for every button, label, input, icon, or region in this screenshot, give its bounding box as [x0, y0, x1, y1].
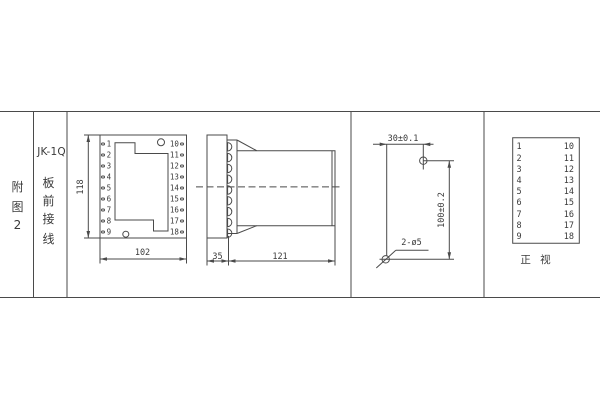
table-row: 211 [517, 153, 575, 164]
terminal-number: 15 [170, 195, 179, 204]
figure-label-char-1: 附 [11, 181, 23, 193]
table-cell-left: 7 [517, 210, 522, 220]
terminal-right-11: 11 [164, 151, 184, 160]
terminal-number: 9 [107, 228, 112, 237]
terminal-left-4: 4 [101, 173, 111, 182]
terminal-number: 13 [170, 173, 179, 182]
table-cell-right: 14 [564, 187, 574, 197]
figure-label-char-3: 2 [14, 219, 22, 231]
terminal-number: 4 [107, 173, 112, 182]
terminal-number: 17 [170, 217, 179, 226]
terminal-number: 1 [107, 140, 112, 149]
terminal-bump [228, 153, 232, 161]
table-cell-left: 2 [517, 154, 522, 164]
taper-bottom [237, 226, 257, 234]
terminal-circle [180, 175, 184, 179]
dim-case-depth-label: 121 [272, 252, 287, 261]
terminal-bump [228, 218, 232, 226]
wiring-label-char-4: 线 [42, 233, 54, 245]
terminal-number: 16 [170, 206, 179, 215]
table-cell-right: 11 [564, 154, 574, 164]
table-row: 514 [517, 187, 575, 198]
terminal-number: 7 [107, 206, 112, 215]
arrow-right [380, 143, 387, 147]
terminal-right-13: 13 [164, 173, 184, 182]
wiring-label-char-2: 前 [42, 195, 54, 207]
terminal-left-8: 8 [101, 217, 111, 226]
wiring-label-char-1: 板 [42, 177, 54, 189]
terminal-left-1: 1 [101, 140, 111, 149]
figure-label-char-2: 图 [11, 201, 23, 213]
table-cell-left: 6 [517, 198, 522, 208]
arrow-left [100, 257, 107, 261]
terminal-right-15: 15 [164, 195, 184, 204]
terminal-number: 14 [170, 184, 179, 193]
terminal-bump [228, 164, 232, 172]
terminal-number: 2 [107, 151, 112, 160]
terminal-circle [180, 208, 184, 212]
terminal-right-10: 10 [164, 140, 184, 149]
terminal-number: 12 [170, 162, 179, 171]
terminal-circle [101, 208, 105, 212]
arrow-left [423, 143, 430, 147]
dim-width-label: 102 [135, 249, 150, 258]
holes-label: 2-ø5 [401, 238, 421, 247]
dim-vertical-label: 100±0.2 [438, 192, 447, 228]
terminal-table-rows: 110211312413514615716817918 [517, 142, 575, 243]
terminal-circle [101, 186, 105, 190]
table-cell-left: 9 [517, 232, 522, 242]
terminal-left-9: 9 [101, 228, 111, 237]
dim-front-depth-label: 35 [212, 252, 222, 261]
dim-horizontal-label: 30±0.1 [388, 134, 419, 143]
terminal-right-14: 14 [164, 184, 184, 193]
terminal-bump [228, 197, 232, 205]
terminal-circle [101, 197, 105, 201]
arrow-left [229, 259, 236, 263]
table-cell-right: 13 [564, 176, 574, 186]
table-cell-right: 18 [564, 232, 574, 242]
front-view-caption: 正 视 [520, 254, 553, 265]
terminal-right-17: 17 [164, 217, 184, 226]
terminal-left-3: 3 [101, 162, 111, 171]
terminal-right-18: 18 [164, 228, 184, 237]
front-mount-hole-bottom [123, 231, 129, 237]
terminal-circle [180, 186, 184, 190]
model-label: JK-1Q [37, 146, 66, 157]
terminal-circle [101, 142, 105, 146]
table-row: 615 [517, 198, 575, 209]
table-cell-left: 4 [517, 176, 522, 186]
terminal-circle [180, 153, 184, 157]
terminal-circle [180, 142, 184, 146]
terminal-right-16: 16 [164, 206, 184, 215]
terminal-circle [101, 175, 105, 179]
terminal-circle [180, 197, 184, 201]
arrow-up [448, 161, 452, 168]
table-row: 312 [517, 164, 575, 175]
terminal-left-7: 7 [101, 206, 111, 215]
table-cell-right: 16 [564, 210, 574, 220]
table-cell-right: 17 [564, 221, 574, 231]
terminal-circle [180, 164, 184, 168]
table-row: 110 [517, 142, 575, 153]
terminal-left-2: 2 [101, 151, 111, 160]
terminal-right-12: 12 [164, 162, 184, 171]
table-cell-left: 5 [517, 187, 522, 197]
table-row: 716 [517, 209, 575, 220]
front-inner-contour [115, 143, 168, 231]
table-cell-right: 12 [564, 165, 574, 175]
arrow-right [180, 257, 187, 261]
terminal-number: 11 [170, 151, 179, 160]
terminal-bump [228, 143, 232, 151]
terminal-circle [101, 219, 105, 223]
table-row: 413 [517, 175, 575, 186]
drawing-lineart [0, 0, 600, 400]
table-cell-left: 1 [517, 142, 522, 152]
frame-band [0, 112, 600, 298]
relay-case-outline [237, 151, 335, 226]
terminal-circle [101, 230, 105, 234]
terminal-circle [180, 219, 184, 223]
terminal-circle [101, 164, 105, 168]
side-view-lineart [196, 135, 340, 266]
arrow-down [448, 252, 452, 259]
terminal-number: 5 [107, 184, 112, 193]
wiring-label-char-3: 接 [42, 213, 54, 225]
side-terminal-bumps [228, 143, 232, 238]
arrow-down [87, 231, 91, 238]
table-row: 918 [517, 231, 575, 242]
terminal-number: 18 [170, 228, 179, 237]
table-cell-right: 10 [564, 142, 574, 152]
terminal-circle [101, 153, 105, 157]
terminal-number: 8 [107, 217, 112, 226]
terminal-number: 10 [170, 140, 179, 149]
appendix-figure-2-drawing: 附 图 2 JK-1Q 板 前 接 线 118 102 123456789 10… [0, 0, 600, 400]
terminal-left-6: 6 [101, 195, 111, 204]
terminal-circle [180, 230, 184, 234]
terminal-bump [228, 207, 232, 215]
dim-height-label: 118 [77, 179, 86, 194]
terminal-left-5: 5 [101, 184, 111, 193]
taper-top [237, 140, 257, 151]
terminal-number: 3 [107, 162, 112, 171]
table-cell-left: 3 [517, 165, 522, 175]
table-cell-right: 15 [564, 198, 574, 208]
table-cell-left: 8 [517, 221, 522, 231]
arrow-up [87, 135, 91, 142]
arrow-right [328, 259, 335, 263]
table-row: 817 [517, 220, 575, 231]
terminal-bump [228, 175, 232, 183]
terminal-number: 6 [107, 195, 112, 204]
